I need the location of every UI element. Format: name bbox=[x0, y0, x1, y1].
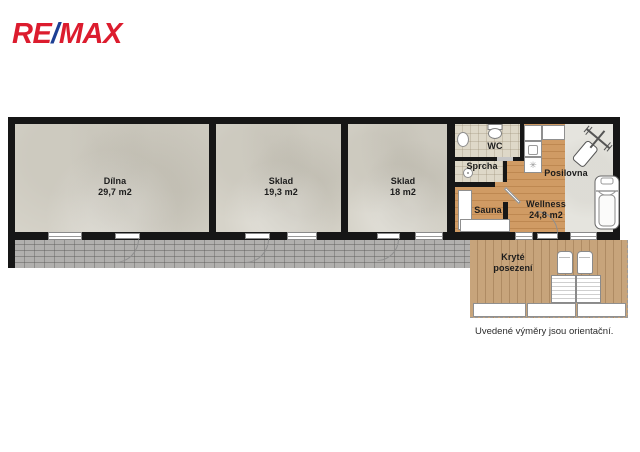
counter-icon bbox=[542, 125, 565, 140]
window-icon bbox=[570, 232, 597, 240]
label-posilovna: Posilovna bbox=[536, 168, 596, 179]
utility-sink-icon bbox=[524, 141, 542, 157]
remax-logo: RE/MAX bbox=[12, 18, 122, 51]
treadmill-icon bbox=[594, 175, 620, 230]
lounge-chair-icon bbox=[557, 251, 573, 274]
deck-bench bbox=[577, 303, 626, 317]
disclaimer-note: Uvedené výměry jsou orientační. bbox=[475, 326, 613, 337]
label-sklad-2: Sklad18 m2 bbox=[328, 176, 478, 198]
label-wellness: Wellness24,8 m2 bbox=[515, 199, 577, 221]
sink-icon bbox=[457, 132, 469, 147]
wall-top bbox=[8, 117, 620, 124]
window-icon bbox=[287, 232, 317, 240]
door-wellness bbox=[537, 233, 558, 239]
shower-drain bbox=[467, 172, 469, 174]
toilet-icon bbox=[486, 124, 504, 139]
cabinet-icon bbox=[524, 125, 542, 141]
logo-slash-icon: / bbox=[51, 18, 59, 50]
wall-left bbox=[8, 117, 15, 268]
exercise-machine-icon bbox=[568, 122, 614, 172]
table-icon bbox=[576, 275, 601, 303]
window-icon bbox=[48, 232, 82, 240]
label-kryte-posezeni: Kryté posezení bbox=[481, 252, 545, 274]
brick-walkway bbox=[15, 240, 470, 268]
lounge-chair-icon bbox=[577, 251, 593, 274]
window-icon bbox=[415, 232, 443, 240]
label-sprcha: Sprcha bbox=[460, 161, 504, 172]
label-sauna: Sauna bbox=[466, 205, 510, 216]
label-dilna: Dílna29,7 m2 bbox=[40, 176, 190, 198]
sauna-bench-lower bbox=[460, 219, 510, 232]
logo-re: RE bbox=[12, 18, 51, 50]
table-icon bbox=[551, 275, 576, 303]
logo-max: MAX bbox=[59, 18, 122, 50]
floorplan-image: RE/MAX ✳ bbox=[0, 0, 640, 452]
deck-bench bbox=[473, 303, 526, 317]
window-icon bbox=[515, 232, 533, 240]
label-wc: WC bbox=[480, 141, 510, 152]
deck-bench bbox=[527, 303, 576, 317]
